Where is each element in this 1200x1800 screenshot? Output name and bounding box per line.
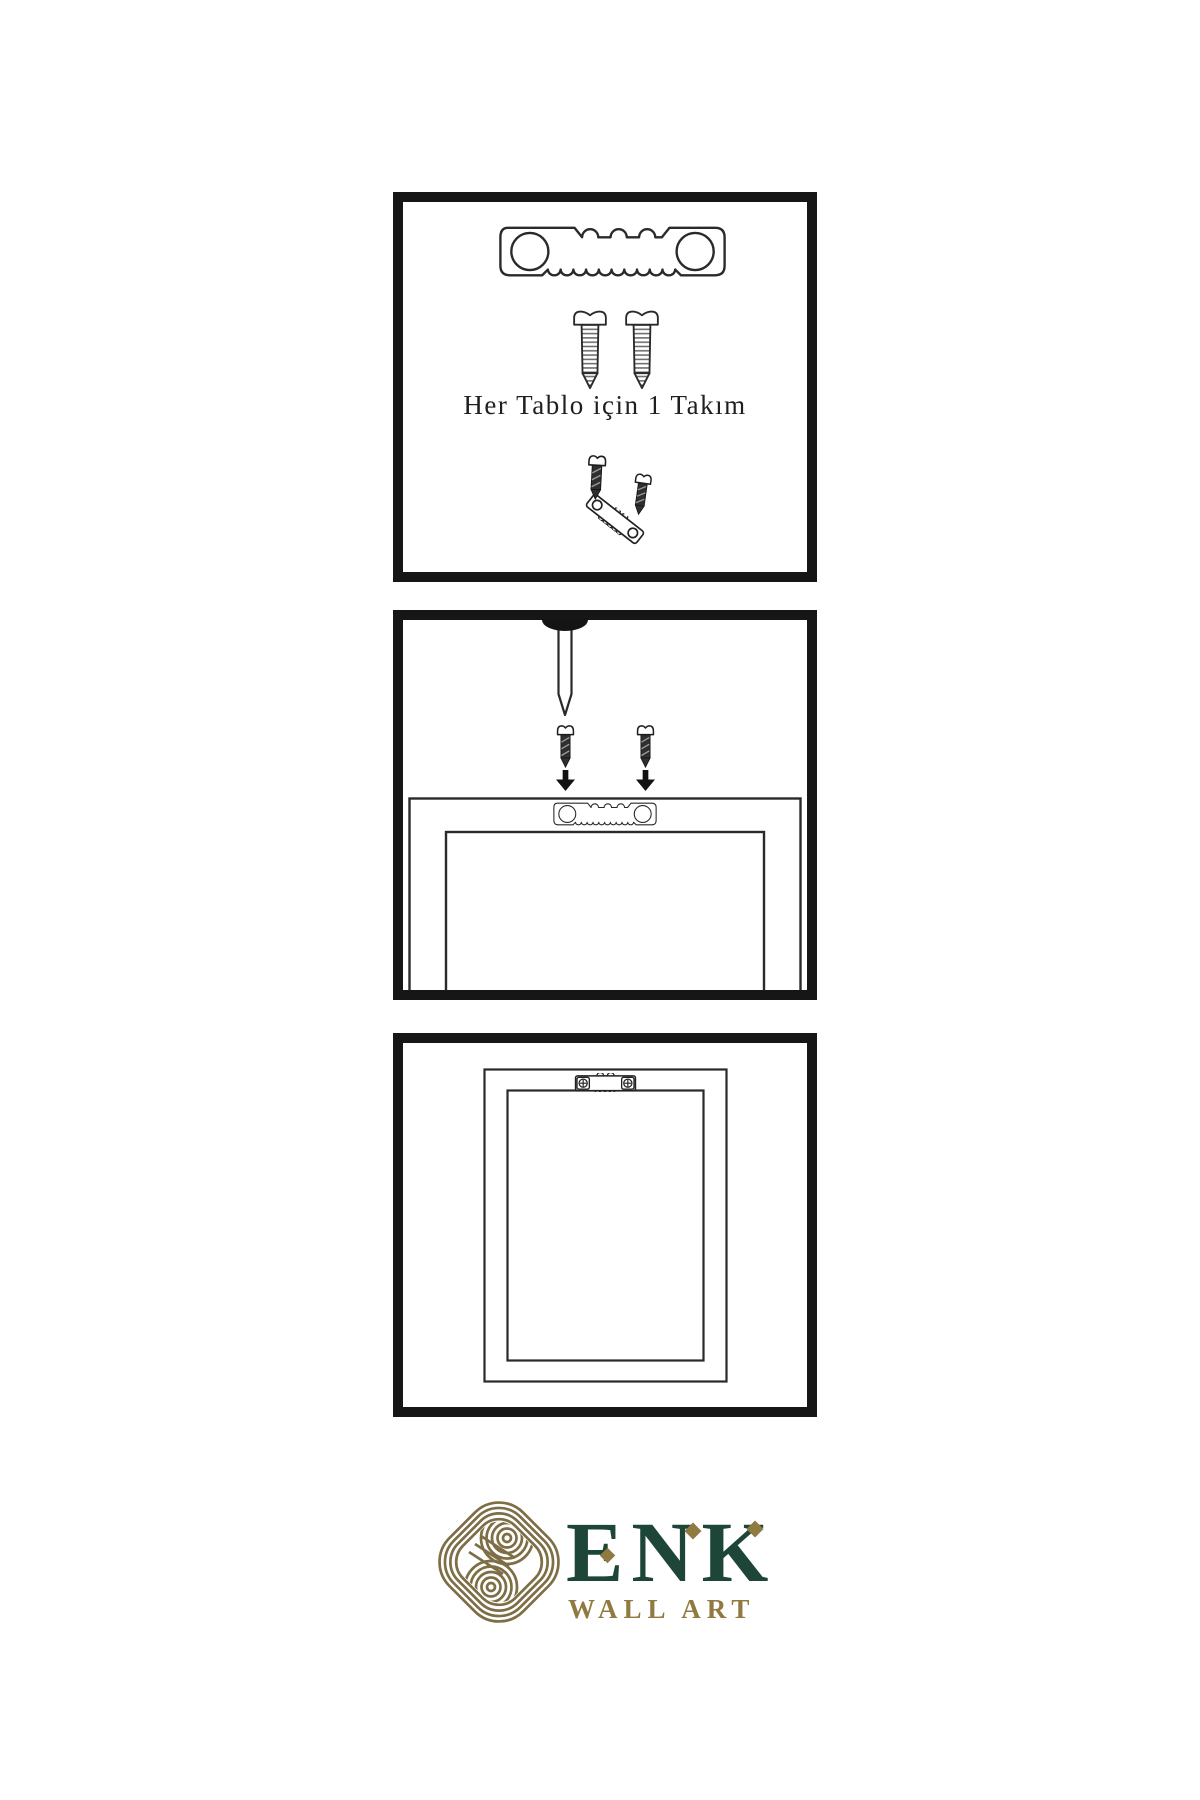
sawtooth-hanger-icon <box>495 223 730 280</box>
dark-screw-icon <box>634 723 657 768</box>
hung-frame-icon <box>483 1068 728 1383</box>
dark-screw-icon <box>554 723 577 768</box>
panel-wall-mounting <box>393 610 817 1000</box>
screw-icon <box>623 306 661 390</box>
panel-kit-contents: Her Tablo için 1 Takım <box>393 192 817 582</box>
down-arrow-icon <box>556 770 575 791</box>
screw-into-hanger-demo-icon <box>575 448 661 556</box>
kit-caption: Her Tablo için 1 Takım <box>403 390 807 421</box>
instruction-sheet: Her Tablo için 1 Takım <box>0 0 1200 1800</box>
frame-back-with-hanger <box>408 797 802 990</box>
down-arrow-icon <box>636 770 655 791</box>
wall-nail-icon <box>542 619 588 719</box>
brand-knot-logo <box>437 1491 561 1634</box>
screw-icon <box>571 306 609 390</box>
panel-hung-frame <box>393 1033 817 1417</box>
brand-subtitle: WALL ART <box>568 1594 755 1625</box>
